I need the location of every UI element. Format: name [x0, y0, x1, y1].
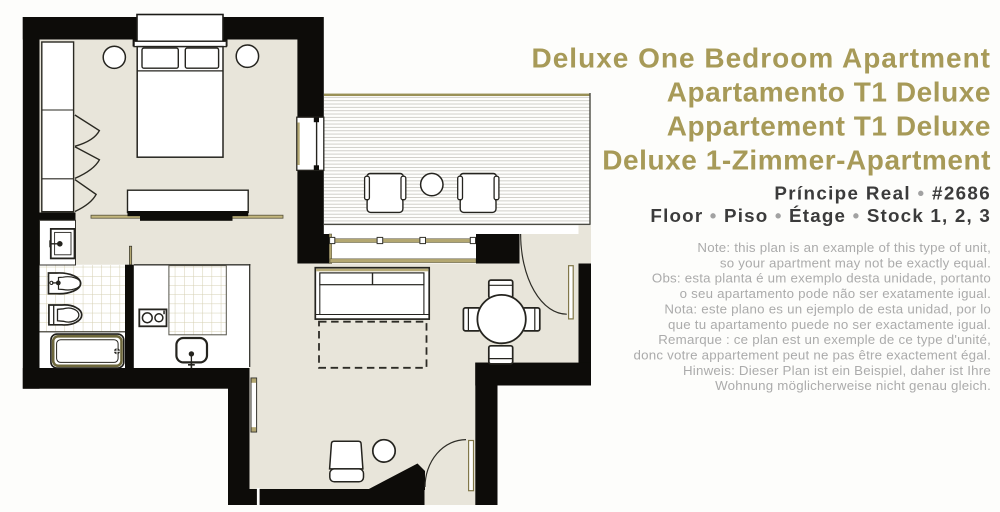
svg-text:Deluxe One Bedroom Apartment: Deluxe One Bedroom Apartment [532, 43, 991, 74]
svg-text:Deluxe 1-Zimmer-Apartment: Deluxe 1-Zimmer-Apartment [602, 145, 991, 176]
svg-text:Hinweis: Dieser Plan ist ein B: Hinweis: Dieser Plan ist ein Beispiel, d… [683, 363, 991, 378]
svg-text:Appartement T1 Deluxe: Appartement T1 Deluxe [667, 111, 991, 142]
svg-text:Remarque : ce plan est un exem: Remarque : ce plan est un exemple de ce … [658, 332, 991, 347]
svg-text:donc votre appartement peut ne: donc votre appartement peut ne pas être … [633, 348, 991, 363]
svg-text:Wohnung möglicherweise nicht g: Wohnung möglicherweise nicht genau gleic… [715, 378, 991, 393]
svg-text:Príncipe Real • #2686: Príncipe Real • #2686 [774, 183, 991, 204]
svg-text:Note: this plan is an example: Note: this plan is an example of this ty… [697, 240, 991, 255]
svg-text:Floor • Piso • Étage • S: Floor • Piso • Étage • Stock 1, 2, 3 [650, 205, 991, 226]
svg-text:so your apartment may not be e: so your apartment may not be exactly equ… [720, 255, 991, 270]
svg-text:que tu apartamento puede no se: que tu apartamento puede no ser exactame… [668, 317, 991, 332]
svg-text:Obs: esta planta é um exemplo: Obs: esta planta é um exemplo desta unid… [652, 271, 991, 286]
svg-text:Apartamento T1 Deluxe: Apartamento T1 Deluxe [667, 77, 991, 108]
svg-text:o seu apartamento pode não ser: o seu apartamento pode não ser exatament… [680, 286, 991, 301]
svg-text:Nota: este plano es un ejemplo: Nota: este plano es un ejemplo de esta u… [664, 301, 991, 316]
